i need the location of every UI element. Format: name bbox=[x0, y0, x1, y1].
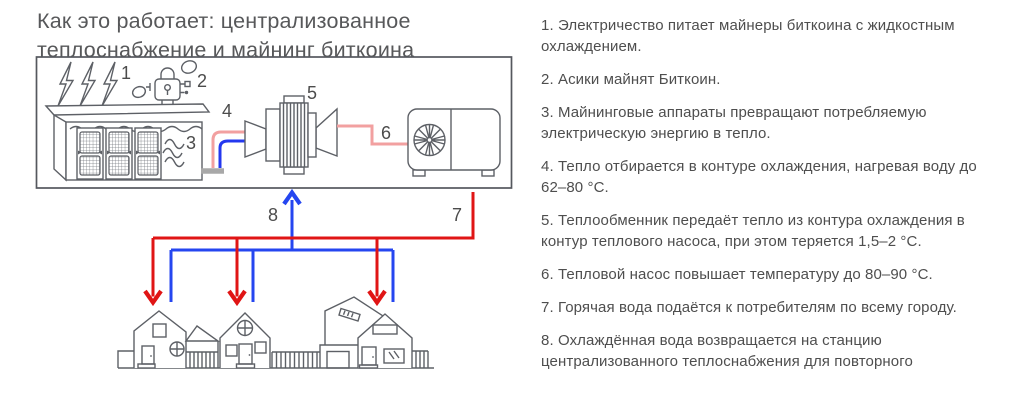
heat-pump bbox=[408, 109, 500, 176]
lightning-icon bbox=[58, 62, 117, 106]
cooling-circuit-pipes bbox=[201, 132, 246, 171]
heat-exchanger bbox=[245, 96, 337, 174]
houses-icon bbox=[118, 297, 434, 368]
supply-water-lines bbox=[145, 192, 473, 303]
exchanger-to-pump-pipe bbox=[337, 126, 409, 144]
cold-pipe bbox=[220, 141, 246, 168]
step-4: 4. Тепло отбирается в контуре охлаждения… bbox=[541, 157, 993, 198]
step-6: 6. Тепловой насос повышает температуру д… bbox=[541, 265, 993, 286]
step-7: 7. Горячая вода подаётся к потребителям … bbox=[541, 298, 993, 319]
step-3: 3. Майнинговые аппараты превращают потре… bbox=[541, 103, 993, 144]
heat-pump-fan-icon bbox=[414, 125, 445, 156]
diagram-label-3: 3 bbox=[186, 133, 196, 153]
district-heating-diagram: 1 2 3 4 5 6 7 8 bbox=[0, 0, 530, 404]
step-1: 1. Электричество питает майнеры биткоина… bbox=[541, 16, 993, 57]
step-5: 5. Теплообменник передаёт тепло из конту… bbox=[541, 211, 993, 252]
bitcoin-lock-icon bbox=[131, 59, 198, 108]
diagram-label-4: 4 bbox=[222, 101, 232, 121]
diagram-label-7: 7 bbox=[452, 205, 462, 225]
step-8: 8. Охлаждённая вода возвращается на стан… bbox=[541, 331, 993, 372]
diagram-label-5: 5 bbox=[307, 83, 317, 103]
coin-icon bbox=[131, 85, 147, 99]
diagram-label-6: 6 bbox=[381, 123, 391, 143]
coin-icon bbox=[180, 59, 198, 75]
step-2: 2. Асики майнят Биткоин. bbox=[541, 70, 993, 91]
return-water-lines bbox=[171, 193, 393, 303]
mining-container bbox=[46, 104, 209, 180]
diagram-label-1: 1 bbox=[121, 63, 131, 83]
infographic-page: Как это работает: централизованное тепло… bbox=[0, 0, 1024, 404]
diagram-label-8: 8 bbox=[268, 205, 278, 225]
steps-list: 1. Электричество питает майнеры биткоина… bbox=[541, 16, 993, 385]
diagram-label-2: 2 bbox=[197, 71, 207, 91]
miner-racks bbox=[77, 128, 161, 179]
hot-pipe bbox=[213, 132, 246, 168]
